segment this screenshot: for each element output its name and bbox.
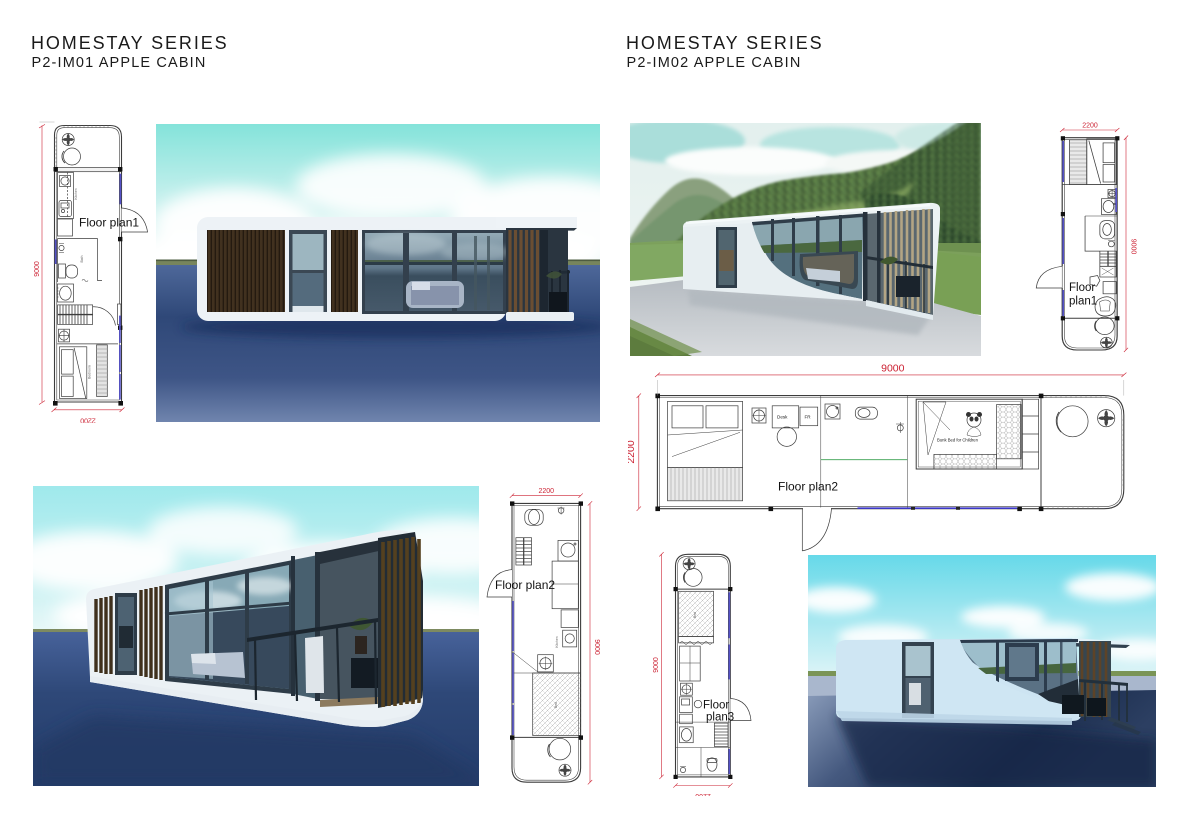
svg-text:FR: FR (805, 415, 812, 420)
svg-text:Floor plan2: Floor plan2 (778, 480, 838, 494)
svg-text:2200: 2200 (80, 417, 96, 424)
svg-text:Bed: Bed (693, 612, 697, 618)
svg-text:Kitchen: Kitchen (555, 636, 559, 647)
svg-text:2200: 2200 (628, 440, 637, 464)
svg-text:9000: 9000 (881, 363, 905, 375)
svg-text:Floor plan1: Floor plan1 (79, 216, 139, 230)
svg-text:2200: 2200 (695, 792, 711, 796)
svg-text:Floor plan2: Floor plan2 (495, 578, 555, 592)
svg-text:Bath: Bath (80, 255, 84, 262)
svg-text:plan1: plan1 (1069, 296, 1097, 308)
svg-text:9000: 9000 (1130, 239, 1137, 255)
svg-text:plan3: plan3 (706, 712, 734, 724)
svg-text:Bed: Bed (554, 702, 558, 708)
svg-text:Floor: Floor (1069, 282, 1095, 294)
svg-text:9000: 9000 (653, 657, 660, 673)
svg-text:Floor: Floor (703, 700, 729, 712)
svg-text:9000: 9000 (34, 261, 41, 277)
svg-text:Kitchen: Kitchen (74, 188, 78, 199)
svg-text:Bunk Bed for Children: Bunk Bed for Children (937, 438, 979, 443)
svg-text:2200: 2200 (539, 488, 555, 495)
svg-text:Desk: Desk (777, 415, 788, 420)
svg-text:9000: 9000 (593, 639, 600, 655)
svg-text:2200: 2200 (1082, 123, 1098, 130)
svg-text:Bedroom: Bedroom (88, 365, 92, 379)
